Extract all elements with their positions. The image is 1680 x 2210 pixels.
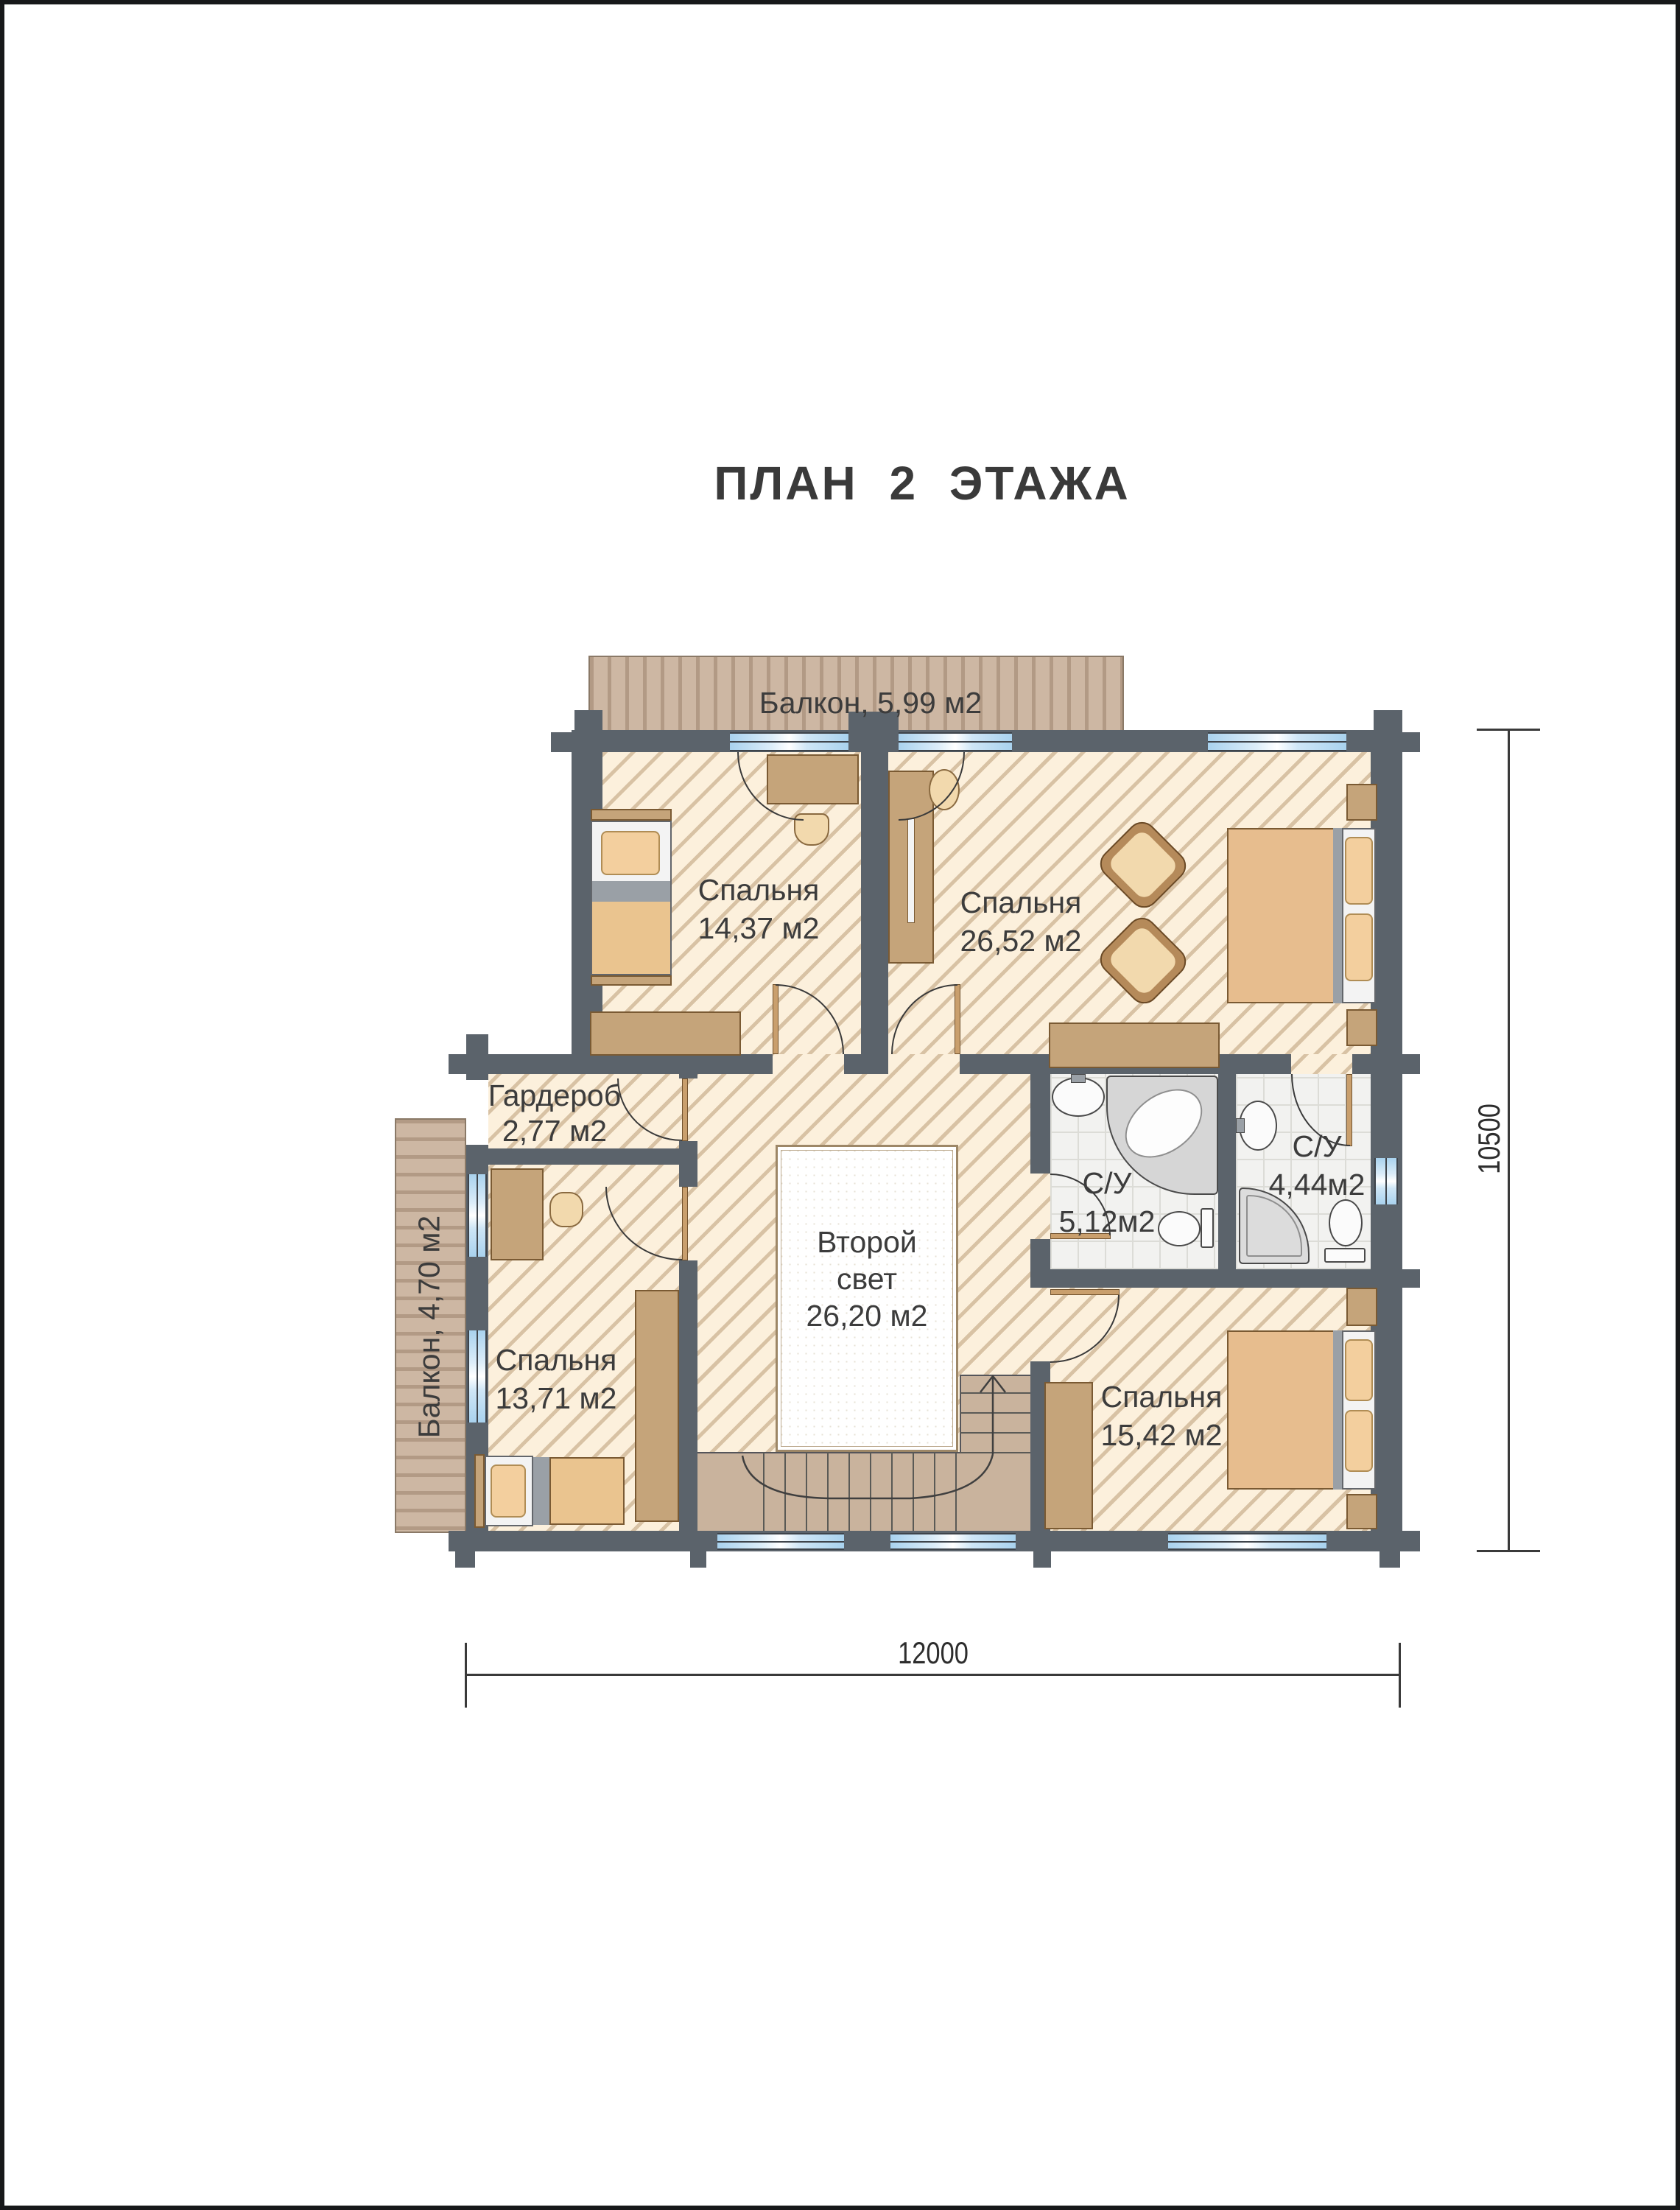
- label-bath1: С/У 5,12м2: [1059, 1164, 1156, 1241]
- label-void-line1: Второй: [806, 1224, 928, 1260]
- stairs-annotation: [4, 4, 1680, 2210]
- label-bath2-name: С/У: [1269, 1127, 1366, 1165]
- label-bedroom1-area: 14,37 м2: [698, 909, 820, 947]
- dim-line-bottom: [466, 1674, 1401, 1676]
- label-bedroom2-area: 26,52 м2: [960, 922, 1082, 960]
- dim-line-right: [1508, 730, 1510, 1551]
- dim-text-right: 10500: [1472, 1104, 1507, 1174]
- label-bedroom4: Спальня 15,42 м2: [1101, 1378, 1223, 1454]
- label-bedroom2: Спальня 26,52 м2: [960, 883, 1082, 960]
- label-bath2-area: 4,44м2: [1269, 1165, 1366, 1204]
- label-void-line2: свет: [806, 1260, 928, 1297]
- label-balcony-top: Балкон, 5,99 м2: [759, 684, 982, 722]
- dim-text-bottom: 12000: [898, 1635, 969, 1671]
- label-bedroom4-area: 15,42 м2: [1101, 1416, 1223, 1454]
- label-bedroom3-name: Спальня: [496, 1341, 617, 1379]
- label-wardrobe: Гардероб 2,77 м2: [488, 1078, 621, 1148]
- label-void: Второй свет 26,20 м2: [806, 1224, 928, 1334]
- label-bath1-name: С/У: [1059, 1164, 1156, 1202]
- label-bedroom1: Спальня 14,37 м2: [698, 871, 820, 947]
- label-bedroom1-name: Спальня: [698, 871, 820, 909]
- dim-tick-right-bottom: [1477, 1550, 1540, 1552]
- label-bedroom3: Спальня 13,71 м2: [496, 1341, 617, 1417]
- floor-plan-page: ПЛАН 2 ЭТАЖА: [0, 0, 1680, 2210]
- label-wardrobe-area: 2,77 м2: [488, 1113, 621, 1148]
- label-bedroom2-name: Спальня: [960, 883, 1082, 922]
- label-bath1-area: 5,12м2: [1059, 1202, 1156, 1241]
- label-bedroom4-name: Спальня: [1101, 1378, 1223, 1416]
- label-bedroom3-area: 13,71 м2: [496, 1379, 617, 1417]
- dim-tick-bottom-left: [465, 1643, 467, 1708]
- dim-tick-right-top: [1477, 729, 1540, 731]
- dim-tick-bottom-right: [1399, 1643, 1401, 1708]
- label-wardrobe-name: Гардероб: [488, 1078, 621, 1113]
- label-void-area: 26,20 м2: [806, 1297, 928, 1334]
- label-balcony-left: Балкон, 4,70 м2: [412, 1215, 447, 1438]
- label-bath2: С/У 4,44м2: [1269, 1127, 1366, 1204]
